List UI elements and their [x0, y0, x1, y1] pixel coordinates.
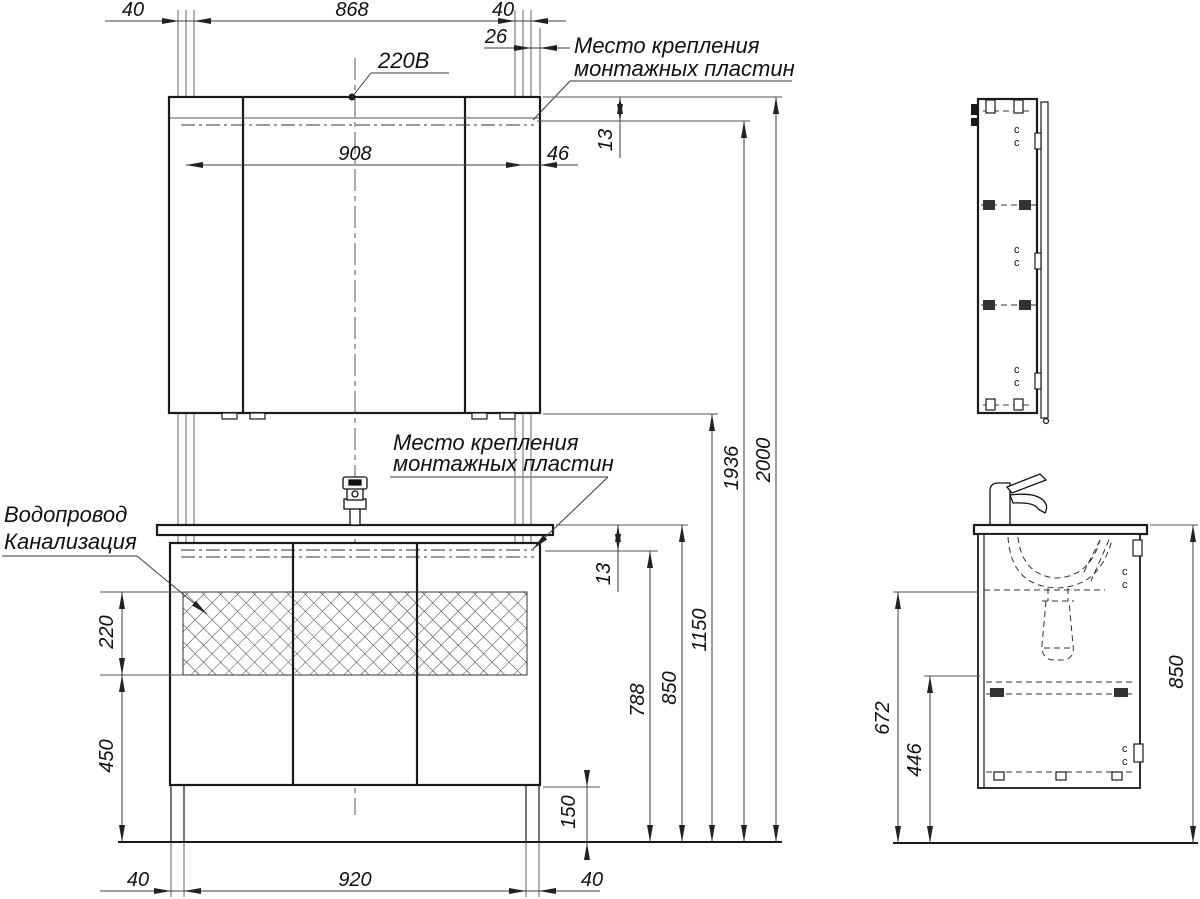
svg-text:c: c [1122, 566, 1128, 578]
hinge-screw-mark: c [1014, 124, 1020, 136]
technical-drawing: 220В Место крепления монтажных пластин М… [0, 0, 1200, 899]
dim-bottom-left-offset: 40 [127, 869, 149, 891]
dim-top-fixing-span: 868 [335, 0, 368, 21]
svg-text:c: c [1014, 377, 1020, 389]
power-outlet-callout: 220В [349, 48, 450, 101]
mirror-cabinet-side-view: c c c c c c [971, 99, 1049, 424]
dim-inner-span: 908 [338, 143, 371, 165]
mounting-plates-mid-line2: монтажных пластин [393, 451, 614, 476]
dim-plate-top-to-floor: 1936 [721, 445, 743, 490]
dim-legs-span: 920 [338, 869, 371, 891]
side-body [978, 534, 1140, 788]
sewerage-label: Канализация [4, 529, 137, 554]
mirror-side-door [1041, 102, 1048, 418]
dim-service-zone-height: 220 [96, 615, 118, 649]
svg-text:c: c [1014, 364, 1020, 376]
dimensions-bottom: 40 920 40 150 [100, 770, 603, 897]
mounting-plates-top-line2: монтажных пластин [574, 56, 795, 81]
hinge-mark-top [971, 104, 979, 115]
dim-bottom-right-offset: 40 [581, 869, 603, 891]
dim-plate-drop-top: 13 [595, 129, 617, 151]
svg-text:c: c [1014, 137, 1020, 149]
dim-zone-to-floor: 450 [96, 739, 118, 772]
power-outlet-label: 220В [377, 48, 429, 73]
svg-text:c: c [1122, 743, 1128, 755]
dim-plate-bottom-to-floor: 788 [627, 683, 649, 716]
svg-text:c: c [1122, 756, 1128, 768]
dim-counter-to-floor: 850 [659, 671, 681, 704]
dim-side-counter-to-floor: 850 [1166, 655, 1188, 688]
dim-shelf-to-floor: 446 [904, 742, 926, 776]
mounting-plates-top-line1: Место крепления [574, 33, 760, 58]
svg-text:c: c [1122, 579, 1128, 591]
water-supply-label: Водопровод [4, 502, 127, 527]
dim-side-inset: 46 [547, 143, 570, 165]
mounting-plates-top-callout: Место крепления монтажных пластин [533, 33, 795, 120]
svg-text:c: c [1014, 244, 1020, 256]
drawing-sheet: 220В Место крепления монтажных пластин М… [0, 0, 1200, 899]
faucet-side [990, 474, 1047, 525]
faucet-front [343, 477, 367, 525]
dim-plate-inset: 26 [484, 26, 508, 48]
mirror-side-body [978, 99, 1037, 413]
side-countertop [974, 525, 1147, 534]
dim-top-left-offset: 40 [122, 0, 144, 21]
dim-top-right-offset: 40 [492, 0, 514, 21]
dim-plate-drop-mid: 13 [593, 563, 615, 585]
vanity-side-view: c c c c [893, 474, 1198, 843]
dim-total-height: 2000 [753, 438, 775, 484]
countertop [157, 525, 553, 535]
svg-text:c: c [1014, 257, 1020, 269]
dim-plinth-height: 150 [558, 795, 580, 828]
dim-mirror-bottom-to-floor: 1150 [689, 608, 711, 651]
dim-drain-to-floor: 672 [872, 701, 894, 734]
service-zone-hatch [183, 592, 527, 675]
door-knob [1044, 419, 1049, 424]
